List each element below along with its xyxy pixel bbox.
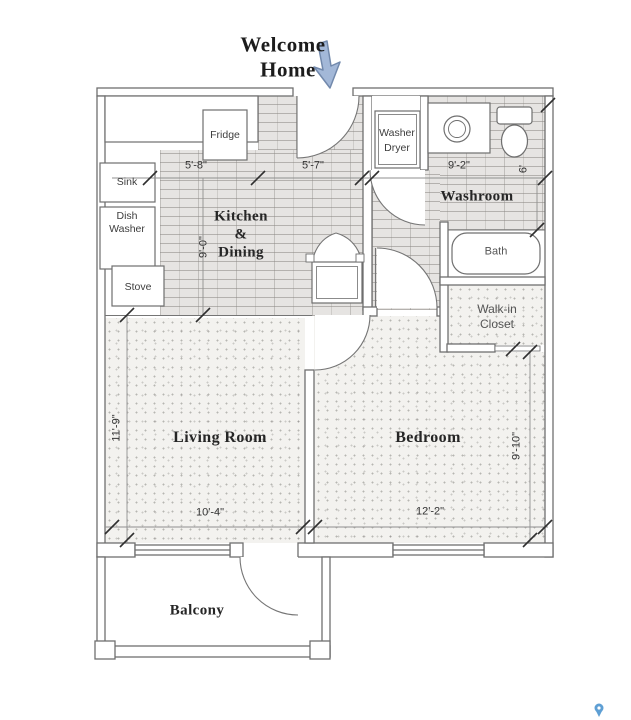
room-label-balcony: Balcony: [170, 602, 224, 619]
pantry-box-inner: [317, 267, 358, 299]
room-label-walkin-line2: Closet: [480, 318, 514, 332]
dim-entry-width: 5'-7": [302, 160, 324, 173]
room-label-kitchen-amp: &: [235, 226, 248, 243]
wall-bath-closet: [440, 277, 545, 285]
wall-bottom-d: [484, 543, 553, 557]
floor-plan: Welcome Home Kitchen & Dining Washroom L…: [0, 0, 631, 720]
plan-linework: [0, 0, 631, 720]
room-label-kitchen: Kitchen: [214, 208, 268, 225]
balcony-door-swing: [240, 557, 298, 615]
fixture-label-stove: Stove: [125, 281, 152, 293]
balcony-post-left: [95, 641, 115, 659]
dim-bedroom-depth: 9'-10": [511, 432, 524, 460]
welcome-title-line2: Home: [260, 58, 316, 83]
bedroom-door-swing: [315, 315, 370, 370]
dim-kitchen-width: 5'-8": [185, 160, 207, 173]
fixture-label-fridge: Fridge: [210, 129, 240, 141]
toilet-tank: [497, 107, 532, 124]
pantry-door-swing: [312, 233, 362, 262]
fixture-label-washer-line1: Washer: [379, 127, 415, 139]
dim-living-depth: 11'-9": [111, 414, 124, 441]
room-label-bedroom: Bedroom: [395, 429, 461, 447]
wall-bottom-c: [298, 543, 393, 557]
room-label-walkin-line1: Walk-in: [477, 303, 517, 317]
entry-door-swing: [297, 96, 359, 158]
balcony-post-right: [310, 641, 330, 659]
dim-living-width: 10'-4": [196, 507, 224, 520]
balcony-rail-bottom: [97, 646, 330, 657]
map-pin-icon: [595, 704, 604, 718]
dim-washroom-width: 9'-2": [448, 160, 470, 173]
wall-top-left: [97, 88, 293, 96]
dim-bedroom-width: 12'-2": [416, 506, 444, 519]
wall-kitchen-washroom: [363, 96, 372, 310]
room-label-living-room: Living Room: [173, 429, 267, 447]
dim-washroom-depth: 6': [518, 165, 531, 173]
vanity-sink-inner: [449, 121, 466, 138]
fixture-label-bath: Bath: [485, 246, 508, 259]
wall-closet-left: [440, 222, 448, 352]
wall-top-right: [353, 88, 553, 96]
wall-hall-stub: [363, 307, 377, 316]
welcome-title-line1: Welcome: [240, 33, 325, 58]
fixture-label-dryer-line2: Dryer: [384, 142, 410, 154]
washer-dryer-box-inner: [379, 115, 417, 165]
dim-kitchen-depth: 9'-0": [198, 236, 211, 258]
toilet-bowl: [502, 125, 528, 157]
fixture-label-sink: Sink: [117, 176, 137, 188]
fixture-label-dishwasher-line2: Washer: [109, 223, 145, 235]
pantry-pivot-right: [356, 254, 364, 262]
wall-closet-bottom: [447, 344, 495, 352]
room-label-washroom: Washroom: [441, 188, 514, 205]
washroom-door-swing: [377, 248, 437, 308]
room-label-dining: Dining: [218, 244, 264, 261]
fixture-label-dishwasher-line1: Dish: [116, 210, 137, 222]
pantry-pivot-left: [306, 254, 314, 262]
wall-right: [545, 96, 553, 557]
wall-bottom-a: [97, 543, 135, 557]
wall-laundry-right: [420, 96, 428, 170]
wall-living-bedroom: [305, 370, 314, 543]
wall-bottom-b: [230, 543, 243, 557]
